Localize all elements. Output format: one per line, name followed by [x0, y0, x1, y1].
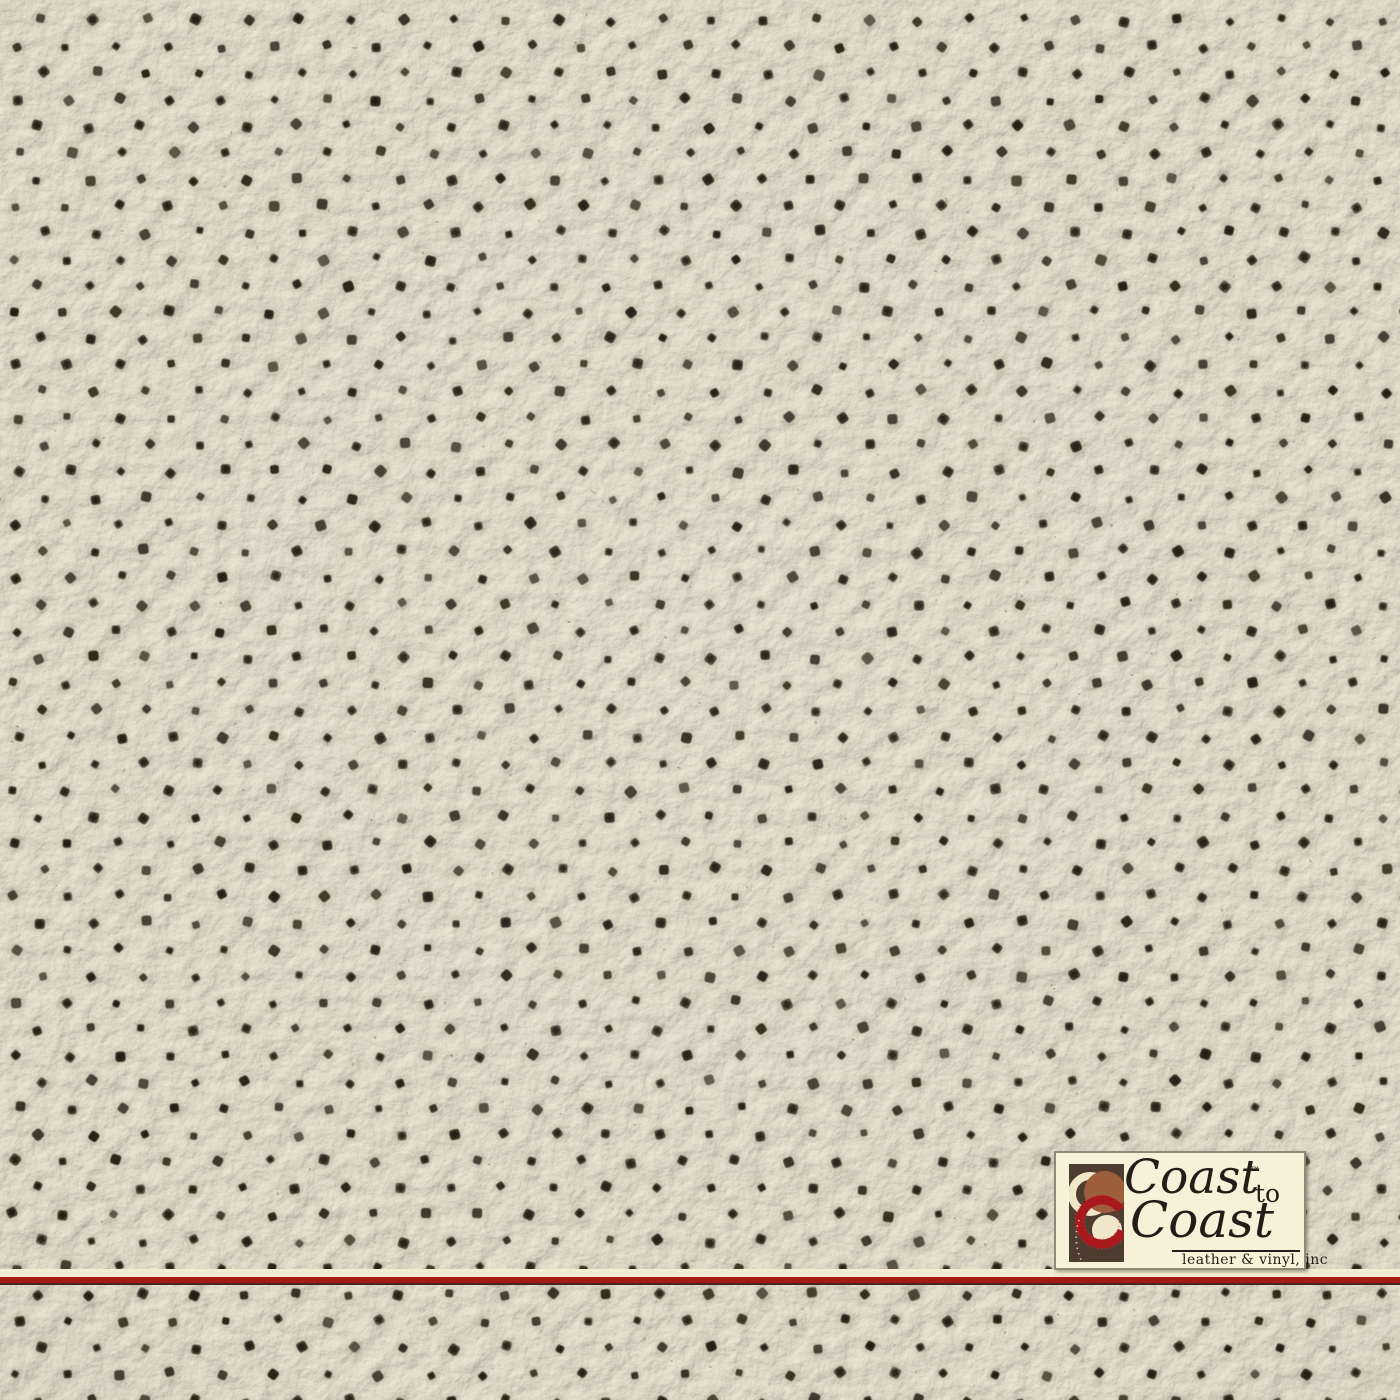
leather-swatch-photo: Coast ™ to Coast leather & vinyl, inc	[0, 0, 1400, 1400]
logo-plaque: Coast ™ to Coast leather & vinyl, inc	[1054, 1151, 1306, 1270]
stripe-cream-band	[0, 1269, 1400, 1277]
stripe-shadow-edge	[0, 1283, 1400, 1285]
logo-mark-art	[1069, 1164, 1124, 1262]
logo-tagline: leather & vinyl, inc	[1182, 1253, 1328, 1267]
logo-mark	[1069, 1164, 1124, 1262]
trademark-symbol: ™	[1250, 1166, 1260, 1177]
logo-word-coast-2: Coast	[1130, 1195, 1274, 1245]
